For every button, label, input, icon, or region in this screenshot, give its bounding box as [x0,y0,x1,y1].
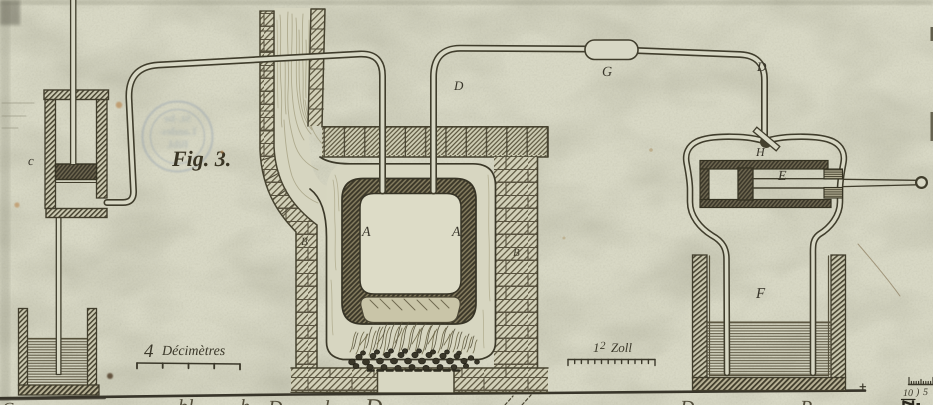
svg-text:Fig. 3.: Fig. 3. [171,146,231,171]
svg-text:): ) [915,387,920,398]
svg-text:10: 10 [903,388,913,399]
svg-text:Landes-: Landes- [158,126,196,138]
svg-text:c: c [28,153,34,168]
svg-text:1: 1 [593,340,600,355]
svg-text:h: h [240,396,250,405]
svg-text:P: P [799,397,812,405]
svg-text:D: D [679,397,695,405]
svg-text:F: F [755,286,766,302]
svg-text:A: A [361,225,371,240]
svg-text:bl: bl [178,396,194,405]
svg-text:St.-be: St.-be [164,113,191,125]
svg-text:B: B [301,236,308,248]
svg-text:D: D [364,395,382,405]
svg-text:Décimètres: Décimètres [161,344,226,359]
svg-text:5: 5 [923,387,928,398]
svg-text:B: B [513,247,520,259]
svg-text:D: D [756,59,767,74]
svg-text:l: l [324,397,330,405]
svg-text:C: C [2,399,14,405]
svg-text:A: A [451,225,461,240]
svg-text:H: H [755,145,766,159]
svg-text:Zoll: Zoll [611,340,632,355]
svg-text:D: D [267,397,283,405]
svg-text:D: D [453,78,464,93]
svg-text:G: G [602,65,612,80]
svg-text:4: 4 [144,341,154,362]
svg-text:2: 2 [600,340,606,352]
svg-text:E: E [777,169,787,184]
